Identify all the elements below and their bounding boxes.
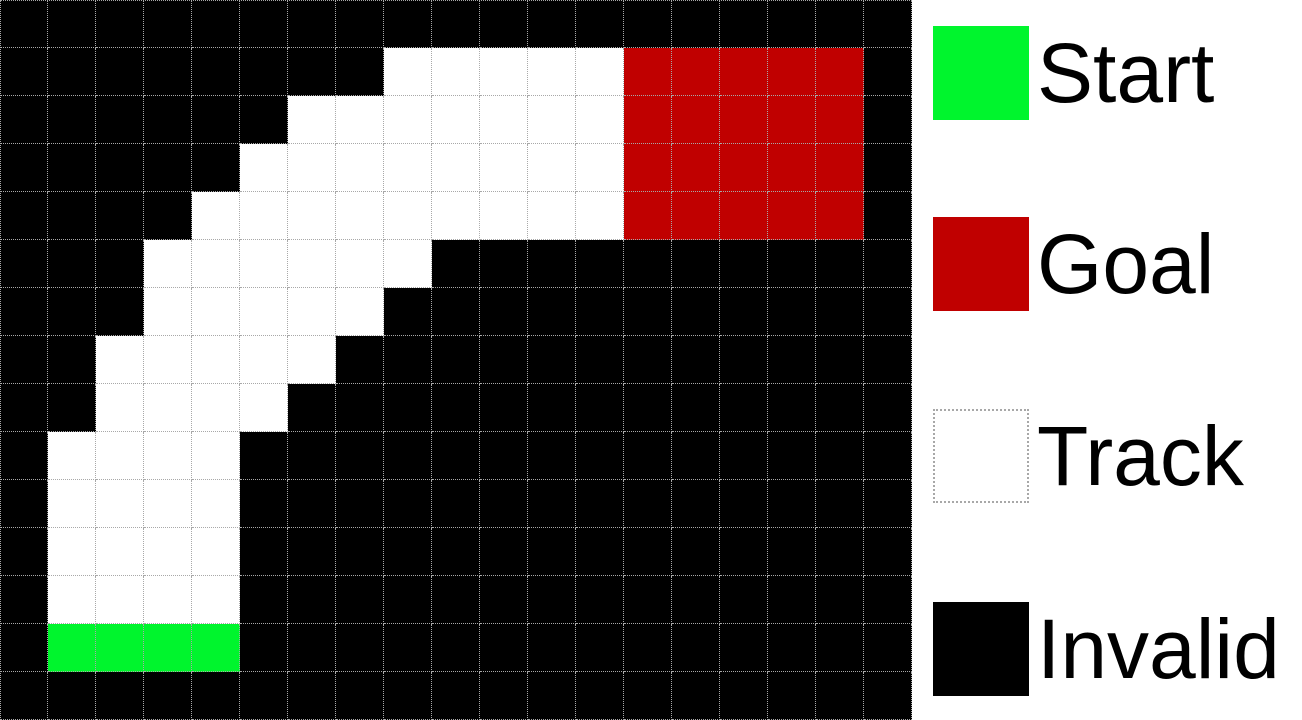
grid-cell-goal (720, 192, 768, 240)
grid-cell-track (384, 144, 432, 192)
grid-cell-invalid (768, 432, 816, 480)
grid-cell-invalid (96, 144, 144, 192)
grid-cell-invalid (864, 528, 912, 576)
grid-cell-invalid (864, 432, 912, 480)
grid-cell-invalid (0, 96, 48, 144)
grid-cell-invalid (576, 576, 624, 624)
grid-cell-invalid (432, 336, 480, 384)
grid-cell-invalid (816, 528, 864, 576)
grid-cell-track (96, 336, 144, 384)
grid-cell-invalid (624, 240, 672, 288)
grid-cell-invalid (480, 528, 528, 576)
grid-cell-track (528, 96, 576, 144)
grid-cell-track (144, 240, 192, 288)
grid-cell-invalid (48, 48, 96, 96)
grid-cell-track (192, 336, 240, 384)
grid-cell-invalid (48, 96, 96, 144)
grid-cell-goal (816, 48, 864, 96)
grid-cell-invalid (864, 192, 912, 240)
grid-cell-invalid (336, 576, 384, 624)
grid-cell-invalid (336, 0, 384, 48)
grid-cell-track (336, 288, 384, 336)
grid-cell-invalid (96, 192, 144, 240)
grid-cell-invalid (864, 96, 912, 144)
grid-cell-invalid (240, 576, 288, 624)
grid-cell-invalid (480, 432, 528, 480)
grid-cell-track (192, 192, 240, 240)
grid-cell-track (576, 144, 624, 192)
grid-cell-track (240, 336, 288, 384)
grid-cell-invalid (720, 576, 768, 624)
grid-cell-invalid (672, 336, 720, 384)
grid-cell-track (528, 192, 576, 240)
grid-cell-goal (768, 96, 816, 144)
grid-cell-track (48, 480, 96, 528)
grid-cell-track (96, 576, 144, 624)
grid-cell-goal (816, 192, 864, 240)
grid-cell-invalid (432, 288, 480, 336)
track-swatch (933, 409, 1029, 503)
grid-cell-invalid (288, 384, 336, 432)
grid-cell-track (432, 96, 480, 144)
grid-cell-invalid (672, 0, 720, 48)
grid-cell-invalid (240, 0, 288, 48)
grid-cell-invalid (528, 576, 576, 624)
grid-cell-track (96, 528, 144, 576)
grid-cell-invalid (288, 576, 336, 624)
grid-cell-track (192, 576, 240, 624)
grid-cell-invalid (144, 192, 192, 240)
grid-cell-track (480, 48, 528, 96)
grid-cell-invalid (864, 672, 912, 720)
grid-cell-invalid (816, 432, 864, 480)
grid-cell-goal (768, 192, 816, 240)
grid-cell-invalid (864, 336, 912, 384)
grid-cell-invalid (96, 288, 144, 336)
grid-cell-invalid (720, 528, 768, 576)
grid-cell-invalid (336, 384, 384, 432)
grid-cell-track (192, 480, 240, 528)
grid-cell-invalid (624, 432, 672, 480)
grid-cell-invalid (672, 528, 720, 576)
grid-cell-invalid (0, 480, 48, 528)
grid-cell-invalid (624, 0, 672, 48)
grid-cell-invalid (528, 0, 576, 48)
grid-cell-invalid (0, 624, 48, 672)
grid-cell-track (432, 192, 480, 240)
grid-cell-invalid (240, 96, 288, 144)
grid-cell-invalid (528, 528, 576, 576)
grid-cell-invalid (816, 384, 864, 432)
grid-cell-invalid (336, 48, 384, 96)
grid-cell-invalid (384, 432, 432, 480)
invalid-swatch (933, 602, 1029, 696)
grid-cell-invalid (720, 240, 768, 288)
grid-cell-invalid (96, 96, 144, 144)
grid-cell-invalid (192, 144, 240, 192)
grid-cell-start (48, 624, 96, 672)
grid-cell-track (576, 96, 624, 144)
grid-cell-track (240, 144, 288, 192)
grid-cell-invalid (864, 144, 912, 192)
grid-cell-invalid (480, 624, 528, 672)
grid-cell-invalid (768, 624, 816, 672)
grid-cell-track (384, 96, 432, 144)
grid-cell-invalid (336, 336, 384, 384)
grid-cell-invalid (768, 480, 816, 528)
grid-cell-goal (768, 48, 816, 96)
grid-cell-track (432, 144, 480, 192)
grid-cell-invalid (576, 624, 624, 672)
grid-cell-invalid (0, 336, 48, 384)
grid-cell-track (96, 384, 144, 432)
grid-cell-invalid (768, 240, 816, 288)
grid-cell-invalid (144, 0, 192, 48)
grid-cell-track (288, 288, 336, 336)
grid-cell-invalid (816, 240, 864, 288)
grid-cell-track (336, 96, 384, 144)
grid-cell-track (192, 528, 240, 576)
grid-cell-invalid (864, 240, 912, 288)
grid-cell-invalid (768, 384, 816, 432)
grid-cell-invalid (192, 672, 240, 720)
track-grid (0, 0, 912, 720)
grid-cell-invalid (0, 240, 48, 288)
grid-cell-invalid (288, 672, 336, 720)
grid-cell-invalid (480, 0, 528, 48)
grid-cell-invalid (576, 672, 624, 720)
grid-cell-invalid (528, 432, 576, 480)
grid-cell-invalid (624, 288, 672, 336)
grid-cell-invalid (672, 624, 720, 672)
start-swatch (933, 26, 1029, 120)
goal-swatch (933, 217, 1029, 311)
grid-cell-invalid (144, 144, 192, 192)
grid-cell-invalid (432, 576, 480, 624)
grid-cell-invalid (0, 144, 48, 192)
grid-cell-track (240, 288, 288, 336)
legend-label-track: Track (1037, 414, 1244, 498)
grid-cell-invalid (432, 528, 480, 576)
grid-cell-invalid (144, 672, 192, 720)
grid-cell-invalid (480, 240, 528, 288)
grid-cell-track (192, 240, 240, 288)
legend-label-start: Start (1037, 31, 1214, 115)
grid-cell-goal (672, 144, 720, 192)
grid-cell-goal (768, 144, 816, 192)
grid-cell-track (240, 240, 288, 288)
grid-cell-invalid (384, 528, 432, 576)
grid-cell-goal (624, 192, 672, 240)
grid-cell-invalid (480, 288, 528, 336)
grid-cell-invalid (624, 576, 672, 624)
grid-cell-invalid (624, 480, 672, 528)
grid-cell-goal (720, 144, 768, 192)
grid-cell-invalid (816, 336, 864, 384)
grid-cell-track (96, 480, 144, 528)
grid-cell-track (384, 240, 432, 288)
grid-cell-invalid (816, 480, 864, 528)
grid-cell-invalid (528, 384, 576, 432)
grid-cell-goal (624, 144, 672, 192)
grid-cell-invalid (384, 384, 432, 432)
grid-cell-invalid (576, 240, 624, 288)
grid-cell-invalid (432, 240, 480, 288)
grid-cell-invalid (720, 384, 768, 432)
grid-cell-track (384, 48, 432, 96)
grid-cell-invalid (528, 480, 576, 528)
grid-cell-invalid (480, 384, 528, 432)
grid-cell-track (384, 192, 432, 240)
legend-item-start: Start (933, 26, 1214, 120)
legend-item-goal: Goal (933, 217, 1214, 311)
grid-cell-invalid (336, 672, 384, 720)
grid-cell-invalid (480, 576, 528, 624)
grid-cell-invalid (624, 528, 672, 576)
grid-cell-track (336, 192, 384, 240)
grid-cell-invalid (288, 480, 336, 528)
grid-cell-invalid (528, 240, 576, 288)
grid-cell-track (96, 432, 144, 480)
grid-cell-goal (816, 144, 864, 192)
grid-cell-invalid (672, 576, 720, 624)
grid-cell-invalid (0, 288, 48, 336)
grid-cell-track (48, 576, 96, 624)
grid-cell-invalid (0, 48, 48, 96)
grid-cell-track (144, 528, 192, 576)
grid-cell-invalid (288, 432, 336, 480)
grid-cell-invalid (0, 576, 48, 624)
grid-cell-invalid (240, 624, 288, 672)
grid-cell-track (192, 384, 240, 432)
grid-cell-track (48, 432, 96, 480)
grid-cell-invalid (432, 672, 480, 720)
grid-cell-invalid (0, 432, 48, 480)
grid-cell-invalid (384, 672, 432, 720)
grid-cell-invalid (768, 576, 816, 624)
grid-cell-invalid (816, 0, 864, 48)
grid-cell-invalid (0, 528, 48, 576)
grid-cell-invalid (528, 336, 576, 384)
grid-cell-track (288, 240, 336, 288)
grid-cell-invalid (480, 480, 528, 528)
grid-cell-invalid (48, 0, 96, 48)
grid-cell-invalid (576, 288, 624, 336)
grid-cell-invalid (336, 432, 384, 480)
grid-cell-goal (672, 48, 720, 96)
legend-label-goal: Goal (1037, 222, 1214, 306)
grid-cell-invalid (288, 0, 336, 48)
grid-cell-invalid (576, 432, 624, 480)
grid-cell-invalid (720, 624, 768, 672)
grid-cell-track (192, 288, 240, 336)
grid-cell-track (144, 336, 192, 384)
grid-cell-invalid (0, 192, 48, 240)
grid-cell-invalid (336, 528, 384, 576)
grid-cell-goal (720, 96, 768, 144)
grid-cell-invalid (816, 672, 864, 720)
grid-cell-track (144, 384, 192, 432)
grid-cell-invalid (864, 0, 912, 48)
grid-cell-invalid (816, 624, 864, 672)
grid-cell-invalid (816, 576, 864, 624)
grid-cell-invalid (672, 288, 720, 336)
grid-cell-invalid (816, 288, 864, 336)
grid-cell-track (240, 384, 288, 432)
grid-cell-invalid (624, 336, 672, 384)
grid-cell-invalid (768, 0, 816, 48)
grid-cell-invalid (384, 480, 432, 528)
grid-cell-track (240, 192, 288, 240)
grid-cell-invalid (432, 0, 480, 48)
grid-cell-invalid (48, 288, 96, 336)
grid-cell-invalid (192, 96, 240, 144)
grid-cell-invalid (576, 480, 624, 528)
grid-cell-invalid (624, 384, 672, 432)
grid-cell-invalid (192, 48, 240, 96)
grid-cell-invalid (96, 672, 144, 720)
grid-cell-invalid (432, 480, 480, 528)
grid-cell-invalid (288, 48, 336, 96)
grid-cell-goal (624, 48, 672, 96)
grid-cell-invalid (768, 672, 816, 720)
grid-cell-invalid (384, 288, 432, 336)
grid-cell-invalid (864, 624, 912, 672)
grid-cell-track (288, 336, 336, 384)
grid-cell-invalid (720, 288, 768, 336)
grid-cell-invalid (720, 672, 768, 720)
grid-cell-invalid (288, 624, 336, 672)
grid-cell-invalid (48, 240, 96, 288)
grid-cell-invalid (144, 48, 192, 96)
grid-cell-invalid (480, 672, 528, 720)
grid-cell-track (480, 144, 528, 192)
legend-label-invalid: Invalid (1037, 607, 1280, 691)
grid-cell-invalid (96, 0, 144, 48)
grid-cell-invalid (48, 384, 96, 432)
grid-cell-track (144, 288, 192, 336)
grid-cell-invalid (720, 0, 768, 48)
grid-cell-invalid (144, 96, 192, 144)
legend-item-track: Track (933, 409, 1244, 503)
grid-cell-invalid (96, 240, 144, 288)
grid-cell-invalid (864, 48, 912, 96)
grid-cell-invalid (48, 192, 96, 240)
grid-cell-track (576, 192, 624, 240)
grid-cell-invalid (624, 624, 672, 672)
grid-cell-invalid (528, 672, 576, 720)
grid-cell-track (480, 192, 528, 240)
grid-cell-invalid (240, 48, 288, 96)
grid-cell-invalid (528, 288, 576, 336)
grid-cell-track (336, 144, 384, 192)
grid-cell-track (336, 240, 384, 288)
grid-cell-invalid (336, 480, 384, 528)
grid-cell-invalid (432, 384, 480, 432)
grid-cell-invalid (48, 144, 96, 192)
grid-cell-invalid (384, 336, 432, 384)
grid-cell-invalid (384, 624, 432, 672)
grid-cell-goal (720, 48, 768, 96)
racetrack-figure: Start Goal Track Invalid (0, 0, 1302, 720)
grid-cell-invalid (528, 624, 576, 672)
grid-cell-invalid (864, 384, 912, 432)
grid-cell-invalid (672, 432, 720, 480)
grid-cell-invalid (432, 432, 480, 480)
grid-cell-invalid (432, 624, 480, 672)
grid-cell-invalid (672, 480, 720, 528)
grid-cell-invalid (672, 672, 720, 720)
grid-cell-track (288, 192, 336, 240)
grid-cell-track (432, 48, 480, 96)
grid-cell-goal (816, 96, 864, 144)
grid-cell-invalid (0, 0, 48, 48)
grid-cell-invalid (0, 384, 48, 432)
grid-cell-start (144, 624, 192, 672)
grid-cell-invalid (864, 480, 912, 528)
grid-cell-invalid (720, 336, 768, 384)
grid-cell-invalid (240, 432, 288, 480)
grid-cell-track (144, 576, 192, 624)
grid-cell-start (96, 624, 144, 672)
grid-cell-goal (624, 96, 672, 144)
grid-cell-invalid (384, 0, 432, 48)
grid-cell-invalid (240, 672, 288, 720)
grid-cell-invalid (768, 528, 816, 576)
grid-cell-invalid (240, 480, 288, 528)
grid-cell-invalid (240, 528, 288, 576)
grid-cell-start (192, 624, 240, 672)
grid-cell-invalid (48, 672, 96, 720)
grid-cell-track (192, 432, 240, 480)
grid-cell-invalid (576, 0, 624, 48)
grid-cell-invalid (384, 576, 432, 624)
grid-cell-invalid (576, 384, 624, 432)
grid-cell-invalid (864, 288, 912, 336)
grid-cell-track (288, 96, 336, 144)
grid-cell-invalid (336, 624, 384, 672)
grid-cell-track (480, 96, 528, 144)
grid-cell-invalid (672, 240, 720, 288)
grid-cell-track (528, 144, 576, 192)
grid-cell-invalid (720, 480, 768, 528)
grid-cell-invalid (720, 432, 768, 480)
grid-cell-track (576, 48, 624, 96)
grid-cell-invalid (48, 336, 96, 384)
grid-cell-invalid (624, 672, 672, 720)
grid-cell-track (144, 480, 192, 528)
grid-cell-invalid (192, 0, 240, 48)
grid-cell-invalid (576, 528, 624, 576)
grid-cell-invalid (480, 336, 528, 384)
grid-cell-track (48, 528, 96, 576)
grid-cell-track (288, 144, 336, 192)
grid-cell-track (528, 48, 576, 96)
grid-cell-goal (672, 96, 720, 144)
grid-cell-invalid (0, 672, 48, 720)
grid-cell-invalid (864, 576, 912, 624)
grid-cell-invalid (576, 336, 624, 384)
grid-cell-goal (672, 192, 720, 240)
grid-cell-invalid (288, 528, 336, 576)
grid-cell-invalid (96, 48, 144, 96)
grid-cell-invalid (672, 384, 720, 432)
grid-cell-invalid (768, 336, 816, 384)
legend-panel: Start Goal Track Invalid (912, 0, 1302, 720)
grid-cell-track (144, 432, 192, 480)
grid-cell-invalid (768, 288, 816, 336)
legend-item-invalid: Invalid (933, 602, 1280, 696)
